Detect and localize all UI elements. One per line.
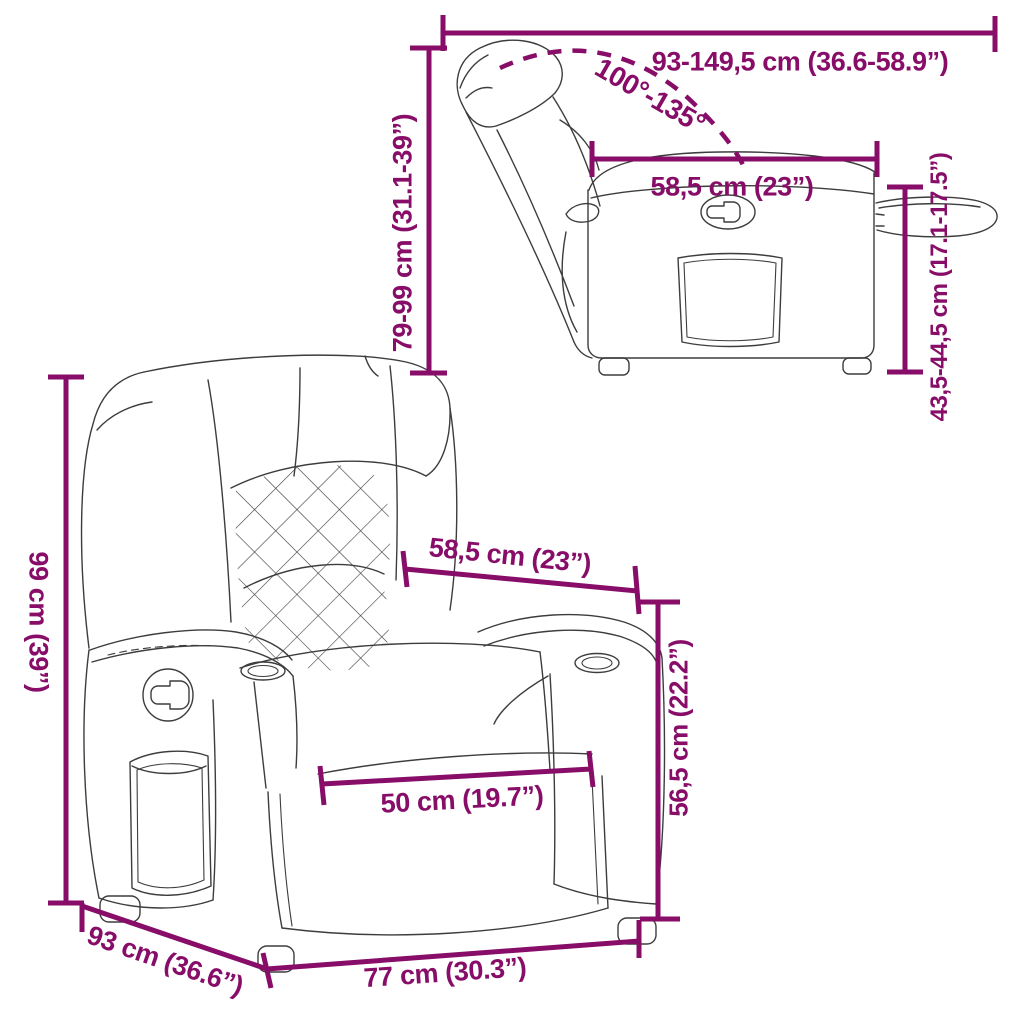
side-extended-length-label: 93-149,5 cm (36.6-58.9”)	[652, 47, 949, 78]
front-view-dimension-lines	[48, 377, 680, 988]
side-arm-height-label: 43,5-44,5 cm (17.1-17.5”)	[926, 153, 954, 422]
product-dimension-diagram: 93-149,5 cm (36.6-58.9”) 100°-135° 58,5 …	[0, 0, 1024, 1024]
front-view-chair-drawing	[82, 355, 665, 972]
side-view-chair-drawing	[457, 40, 997, 375]
front-seat-height-label: 56,5 cm (22.2”)	[664, 639, 695, 817]
diagram-artwork	[0, 0, 1024, 1024]
side-seat-depth-label: 58,5 cm (23”)	[651, 172, 814, 203]
side-back-height-label: 79-99 cm (31.1-39”)	[388, 114, 419, 353]
front-height-label: 99 cm (39”)	[23, 551, 54, 692]
